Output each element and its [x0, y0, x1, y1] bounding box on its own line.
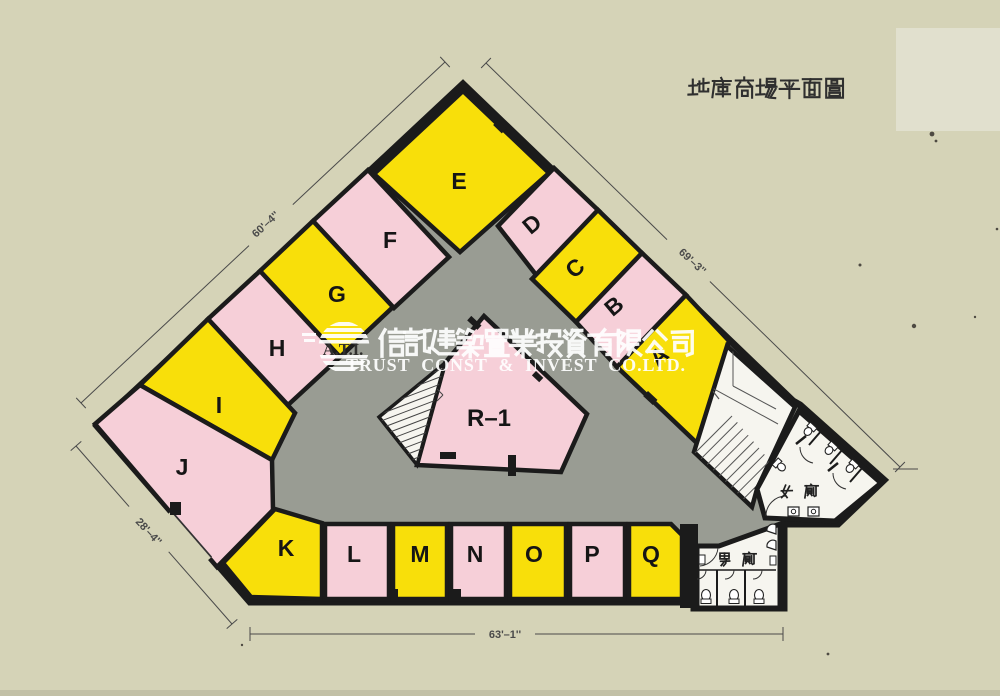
svg-text:K: K	[278, 535, 295, 561]
svg-text:P: P	[584, 541, 599, 567]
svg-text:O: O	[525, 541, 543, 567]
svg-text:E: E	[451, 168, 466, 194]
svg-text:L: L	[347, 541, 361, 567]
svg-text:I: I	[216, 392, 222, 418]
svg-text:H: H	[269, 335, 286, 361]
svg-text:63'–1'': 63'–1''	[489, 629, 522, 641]
svg-text:Q: Q	[642, 541, 660, 567]
svg-text:F: F	[383, 227, 397, 253]
svg-text:G: G	[328, 281, 346, 307]
svg-text:R–1: R–1	[467, 405, 511, 432]
svg-text:N: N	[467, 541, 484, 567]
svg-text:J: J	[176, 454, 189, 480]
svg-text:M: M	[410, 541, 429, 567]
svg-text:TRUST CONST & INVEST CO.LT: TRUST CONST & INVEST CO.LTD.	[346, 355, 686, 375]
